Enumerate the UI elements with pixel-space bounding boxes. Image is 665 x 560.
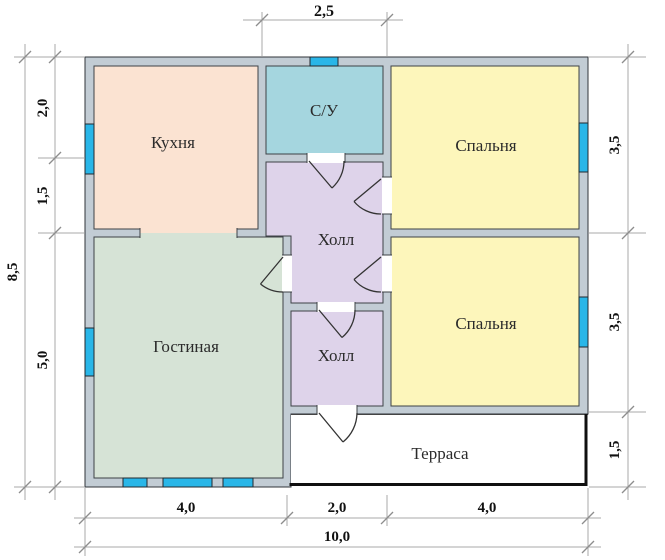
passage-kitchen-living [140, 229, 237, 234]
room-label-kitchen: Кухня [151, 133, 195, 152]
floor-plan-drawing: Кухня С/У Спальня Холл Гостиная Спальня … [0, 0, 665, 560]
door-gap-halls [317, 302, 355, 312]
dim-bottom-seg-3: 4,0 [478, 500, 497, 516]
dim-left-total: 8,5 [5, 263, 21, 282]
dim-left-seg-3: 5,0 [35, 351, 51, 370]
room-label-hall-lower: Холл [318, 346, 355, 365]
dim-top-width: 2,5 [314, 3, 334, 20]
window-living-bottom-3 [223, 478, 253, 487]
dim-bottom-seg-2: 2,0 [328, 500, 347, 516]
window-bathroom-top [310, 57, 338, 66]
room-label-bathroom: С/У [310, 101, 339, 120]
dim-bottom-seg-1: 4,0 [177, 500, 196, 516]
room-label-living: Гостиная [153, 337, 219, 356]
window-living-bottom-1 [123, 478, 147, 487]
window-kitchen-left [85, 124, 94, 174]
dimension-top: 2,5 [243, 3, 403, 56]
room-label-bedroom-top: Спальня [455, 136, 516, 155]
dimension-right: 3,5 3,5 1,5 [589, 44, 646, 500]
window-living-bottom-2 [163, 478, 212, 487]
passage-kitchen-living-2 [140, 233, 237, 238]
floor-plan-canvas: Кухня С/У Спальня Холл Гостиная Спальня … [0, 0, 665, 560]
dim-left-seg-1: 2,0 [35, 99, 51, 118]
door-gap-bathroom [307, 153, 345, 163]
dim-left-seg-2: 1,5 [35, 187, 51, 206]
dim-right-seg-1: 3,5 [607, 136, 623, 155]
room-label-bedroom-bottom: Спальня [455, 314, 516, 333]
dim-right-seg-3: 1,5 [607, 441, 623, 460]
window-living-left [85, 328, 94, 376]
door-gap-living [282, 255, 292, 292]
door-gap-terrace [317, 405, 357, 415]
dimension-left: 2,0 1,5 5,0 8,5 [5, 44, 84, 500]
dim-bottom-total: 10,0 [324, 529, 350, 545]
door-gap-bedroom-bottom [382, 255, 392, 292]
room-label-terrace: Терраса [411, 444, 469, 463]
dim-right-seg-2: 3,5 [607, 313, 623, 332]
room-living [94, 237, 283, 478]
window-bedroom-bottom-right [579, 297, 588, 347]
door-gap-bedroom-top [382, 177, 392, 214]
room-label-hall-upper: Холл [318, 230, 355, 249]
window-bedroom-top-right [579, 123, 588, 172]
dimension-bottom: 4,0 2,0 4,0 10,0 [74, 488, 601, 556]
